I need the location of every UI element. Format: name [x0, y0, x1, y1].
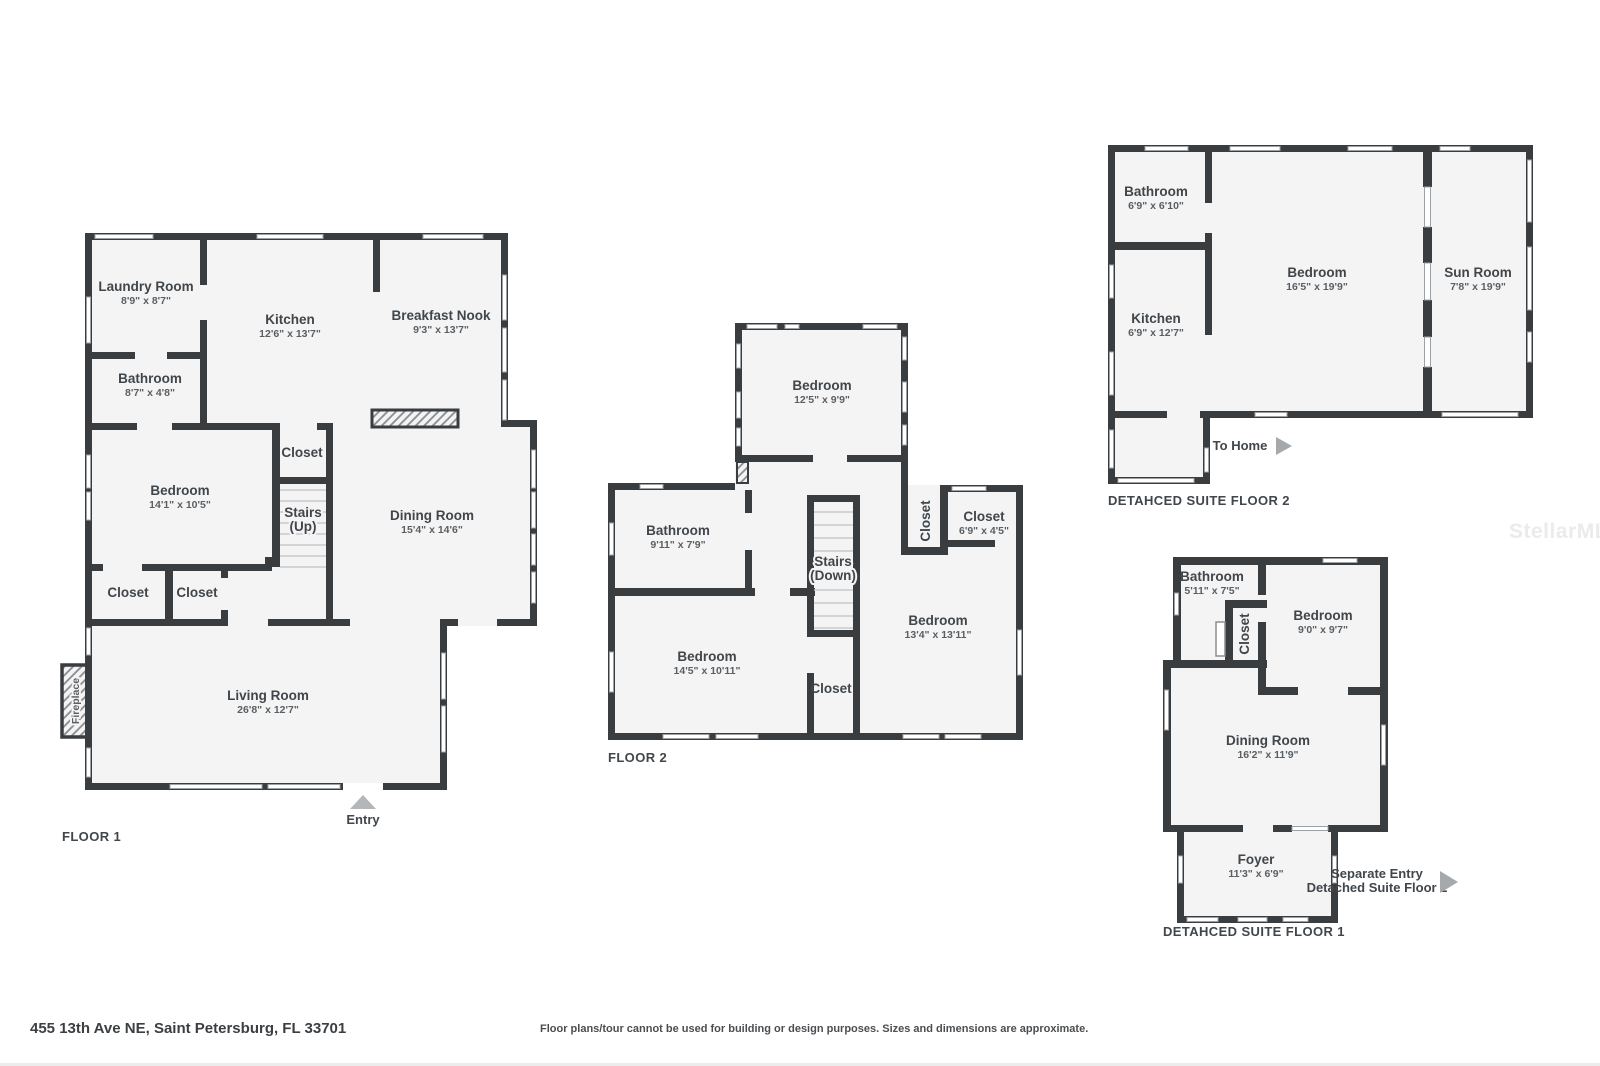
room-label-kitchen: Kitchen	[265, 312, 315, 327]
floor2-hatch-connector	[737, 462, 748, 483]
to-home-label: To Home	[1213, 438, 1268, 453]
room-label-bedroom-d2: Bedroom	[1287, 265, 1346, 280]
stairs-down-direction: (Down)	[810, 568, 856, 583]
room-dims-living: 26'8" x 12'7"	[237, 704, 299, 716]
room-label-sunroom: Sun Room	[1444, 265, 1512, 280]
stellar-mls-watermark: StellarMLS	[1509, 520, 1600, 543]
property-address: 455 13th Ave NE, Saint Petersburg, FL 33…	[30, 1020, 346, 1037]
room-label-closet-left: Closet	[107, 585, 149, 600]
room-label-dining-f1: Dining Room	[390, 508, 474, 523]
room-label-closet-hall: Closet	[281, 445, 323, 460]
separate-entry-label-line2: Detached Suite Floor 2	[1307, 880, 1448, 895]
floor2-footprint	[608, 462, 1023, 740]
entry-triangle-icon	[350, 795, 376, 809]
floor2-title: FLOOR 2	[608, 750, 667, 765]
room-dims-dining-f1: 15'4" x 14'6"	[401, 524, 463, 536]
room-label-closet-right-f2: Closet	[963, 509, 1005, 524]
room-dims-kitchen: 12'6" x 13'7"	[259, 328, 321, 340]
disclaimer-text: Floor plans/tour cannot be used for buil…	[540, 1023, 1088, 1035]
floor1-title: FLOOR 1	[62, 829, 121, 844]
room-dims-bathroom-d2: 6'9" x 6'10"	[1128, 200, 1184, 212]
room-label-closet-right: Closet	[176, 585, 218, 600]
room-dims-dining-d1: 16'2" x 11'9"	[1237, 749, 1298, 761]
room-label-bathroom-f2: Bathroom	[646, 523, 710, 538]
entry-label: Entry	[346, 812, 380, 827]
floorplan-canvas: Fireplace	[0, 0, 1600, 1066]
room-dims-bedroom-f1: 14'1" x 10'5"	[149, 499, 211, 511]
room-label-bedroom-left-f2: Bedroom	[677, 649, 736, 664]
room-dims-foyer: 11'3" x 6'9"	[1228, 868, 1283, 880]
floorplan-page: Fireplace	[0, 0, 1600, 1066]
room-dims-bedroom-top-f2: 12'5" x 9'9"	[794, 394, 850, 406]
room-label-closet-d1: Closet	[1237, 613, 1252, 655]
room-label-bedroom-d1: Bedroom	[1293, 608, 1352, 623]
room-dims-bathroom-f1: 8'7" x 4'8"	[125, 387, 175, 399]
room-dims-sunroom: 7'8" x 19'9"	[1450, 281, 1506, 293]
fireplace: Fireplace	[62, 665, 88, 737]
closet-door-symbol	[1216, 622, 1225, 656]
room-label-foyer: Foyer	[1238, 852, 1276, 867]
room-dims-bathroom-f2: 9'11" x 7'9"	[650, 539, 705, 551]
room-label-closet-bottom-f2: Closet	[810, 681, 852, 696]
room-dims-closet-right-f2: 6'9" x 4'5"	[959, 525, 1009, 537]
stairs-down-label: Stairs	[814, 554, 852, 569]
detached-suite-floor2-plan: Bathroom 6'9" x 6'10" Kitchen 6'9" x 12'…	[1108, 145, 1533, 508]
room-dims-bedroom-right-f2: 13'4" x 13'11"	[905, 629, 972, 641]
room-label-bathroom-d2: Bathroom	[1124, 184, 1188, 199]
detached-suite-floor1-plan: Bathroom 5'11" x 7'5" Closet Bedroom 9'0…	[1163, 557, 1458, 939]
room-dims-kitchen-d2: 6'9" x 12'7"	[1128, 327, 1184, 339]
kitchen-counter	[372, 410, 458, 427]
room-dims-bedroom-d1: 9'0" x 9'7"	[1298, 624, 1348, 636]
room-label-living: Living Room	[227, 688, 309, 703]
room-label-bathroom-f1: Bathroom	[118, 371, 182, 386]
floor2-plan: Bedroom 12'5" x 9'9" Bathroom 9'11" x 7'…	[608, 323, 1023, 765]
room-label-bedroom-top-f2: Bedroom	[792, 378, 851, 393]
fireplace-label: Fireplace	[70, 678, 82, 724]
detached1-title: DETAHCED SUITE FLOOR 1	[1163, 924, 1345, 939]
detached2-title: DETAHCED SUITE FLOOR 2	[1108, 493, 1290, 508]
room-label-laundry: Laundry Room	[98, 279, 193, 294]
room-label-kitchen-d2: Kitchen	[1131, 311, 1181, 326]
room-label-bedroom-right-f2: Bedroom	[908, 613, 967, 628]
stairs-up-direction: (Up)	[290, 519, 317, 534]
room-label-breakfast-nook: Breakfast Nook	[391, 308, 491, 323]
stairs-up-label: Stairs	[284, 505, 322, 520]
room-label-bathroom-d1: Bathroom	[1180, 569, 1244, 584]
room-label-dining-d1: Dining Room	[1226, 733, 1310, 748]
separate-entry-label-line1: Separate Entry	[1331, 866, 1424, 881]
room-label-bedroom-f1: Bedroom	[150, 483, 209, 498]
room-label-closet-side-f2: Closet	[918, 500, 933, 542]
separate-entry-arrow-icon	[1440, 871, 1458, 893]
floor1-plan: Fireplace	[62, 233, 537, 844]
room-dims-breakfast-nook: 9'3" x 13'7"	[413, 324, 469, 336]
room-dims-bedroom-d2: 16'5" x 19'9"	[1286, 281, 1348, 293]
room-dims-bedroom-left-f2: 14'5" x 10'11"	[674, 665, 741, 677]
room-dims-laundry: 8'9" x 8'7"	[121, 295, 171, 307]
to-home-arrow-icon	[1276, 437, 1292, 455]
room-dims-bathroom-d1: 5'11" x 7'5"	[1184, 585, 1239, 597]
